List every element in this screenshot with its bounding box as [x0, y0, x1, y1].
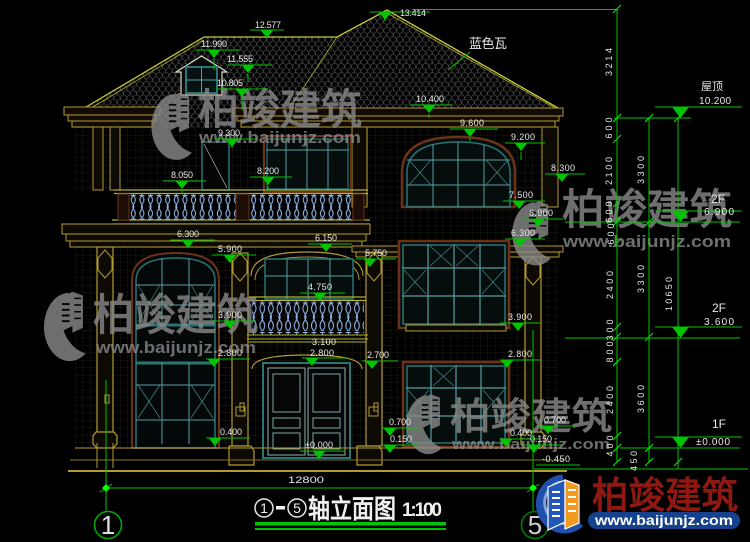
svg-text:±0.000: ±0.000 [305, 440, 333, 450]
svg-text:400: 400 [605, 436, 615, 457]
svg-text:1: 1 [101, 510, 115, 540]
svg-text:600: 600 [604, 202, 614, 223]
svg-text:8.050: 8.050 [171, 170, 193, 180]
svg-text:1:100: 1:100 [402, 500, 442, 521]
svg-text:6.900: 6.900 [704, 207, 734, 218]
svg-text:2.800: 2.800 [508, 349, 532, 359]
svg-text:10.200: 10.200 [699, 96, 731, 107]
svg-text:9.600: 9.600 [460, 118, 484, 128]
svg-text:9.300: 9.300 [218, 128, 240, 138]
svg-text:11.990: 11.990 [201, 39, 227, 49]
svg-text:5: 5 [293, 500, 301, 516]
svg-text:6.300: 6.300 [177, 229, 199, 239]
svg-text:6.300: 6.300 [511, 228, 535, 238]
svg-text:柏竣建筑: 柏竣建筑 [592, 474, 738, 516]
svg-text:9.200: 9.200 [511, 132, 535, 142]
svg-text:2F: 2F [712, 301, 726, 315]
svg-text:2.800: 2.800 [310, 348, 334, 358]
svg-text:0.400: 0.400 [220, 427, 242, 437]
svg-text:0.700: 0.700 [389, 417, 411, 427]
svg-text:8.300: 8.300 [551, 163, 575, 173]
svg-text:5.900: 5.900 [218, 244, 242, 254]
svg-text:0.150: 0.150 [390, 434, 412, 444]
svg-text:屋顶: 屋顶 [701, 80, 723, 93]
svg-text:柏竣建筑: 柏竣建筑 [198, 86, 362, 133]
svg-text:11.555: 11.555 [227, 54, 253, 64]
svg-text:600: 600 [606, 224, 616, 245]
svg-text:蓝色瓦: 蓝色瓦 [469, 36, 507, 51]
svg-text:5.750: 5.750 [365, 248, 387, 258]
svg-text:12800: 12800 [288, 475, 324, 485]
svg-text:1: 1 [260, 500, 268, 516]
svg-text:8.200: 8.200 [257, 166, 279, 176]
svg-text:450: 450 [629, 451, 639, 471]
svg-text:-0.450: -0.450 [542, 454, 570, 464]
svg-text:1F: 1F [712, 417, 726, 431]
svg-text:800: 800 [605, 342, 615, 363]
svg-text:2F: 2F [711, 192, 725, 206]
svg-text:3.900: 3.900 [508, 312, 532, 322]
svg-text:3.900: 3.900 [218, 310, 242, 320]
svg-text:2.700: 2.700 [367, 350, 389, 360]
svg-text:6.900: 6.900 [529, 208, 553, 218]
svg-text:轴立面图: 轴立面图 [308, 494, 396, 524]
svg-text:10.400: 10.400 [416, 94, 444, 104]
svg-text:600: 600 [604, 118, 614, 139]
svg-text:7.500: 7.500 [509, 190, 533, 200]
svg-text:12.577: 12.577 [255, 20, 281, 30]
svg-text:300: 300 [605, 320, 615, 341]
svg-text:10.805: 10.805 [217, 78, 243, 88]
svg-text:3.600: 3.600 [704, 317, 734, 328]
svg-text:4.750: 4.750 [308, 282, 332, 292]
svg-text:3.100: 3.100 [312, 337, 336, 347]
svg-text:0.400: 0.400 [510, 428, 532, 438]
svg-text:www.baijunjz.com: www.baijunjz.com [594, 513, 733, 528]
svg-text:±0.000: ±0.000 [696, 437, 730, 448]
svg-text:6.150: 6.150 [315, 233, 337, 243]
svg-text:2.800: 2.800 [218, 348, 242, 358]
svg-text:www.baijunjz.com: www.baijunjz.com [562, 232, 731, 251]
svg-text:0.700: 0.700 [544, 415, 566, 425]
